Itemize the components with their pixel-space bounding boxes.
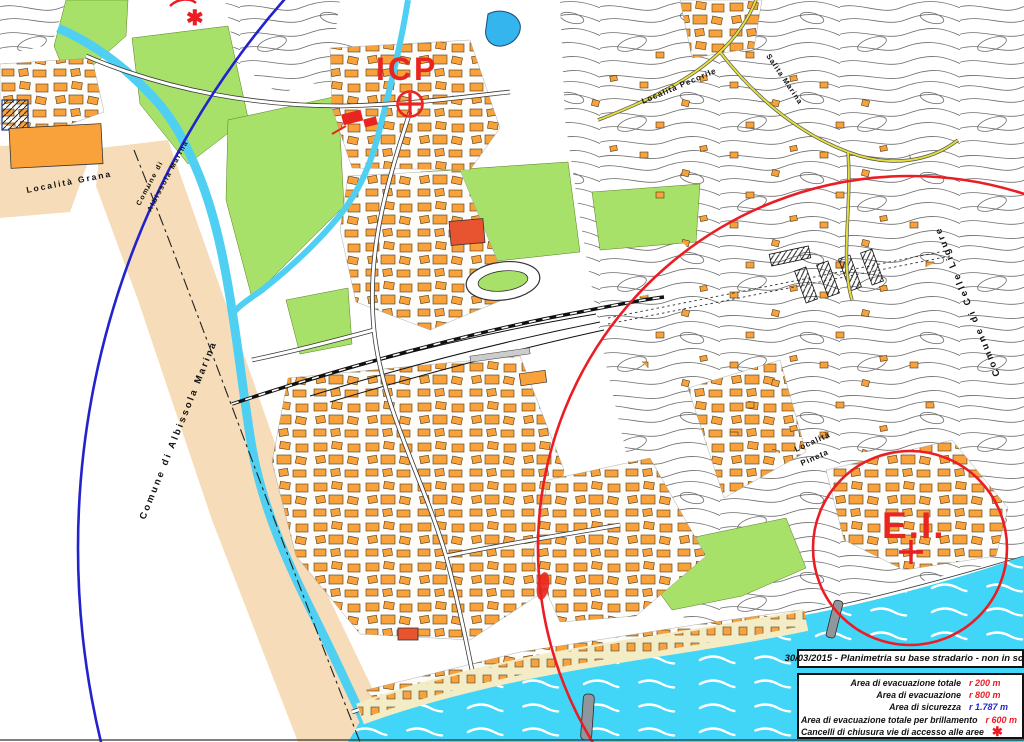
legend-row-evac-totale: Area di evacuazione totale r 200 m <box>801 677 1018 689</box>
legend-value: r 200 m <box>961 678 1018 688</box>
legend-value: r 800 m <box>961 690 1018 700</box>
legend-label: Cancelli di chiusura vie di accesso alle… <box>801 727 984 737</box>
icp-marker <box>398 92 423 117</box>
legend-label: Area di evacuazione totale <box>801 678 961 688</box>
legend-title: 30/03/2015 - Planimetria su base stradar… <box>785 653 1024 664</box>
legend: Area di evacuazione totale r 200 m Area … <box>797 673 1024 739</box>
legend-label: Area di evacuazione <box>801 690 961 700</box>
ei-label: E.I. <box>882 505 946 546</box>
legend-gate-asterisk: ✱ <box>984 727 1018 737</box>
icp-label: ICP <box>376 51 438 87</box>
legend-label: Area di evacuazione totale per brillamen… <box>801 715 977 725</box>
legend-value: r 1.787 m <box>961 702 1018 712</box>
legend-row-cancelli: Cancelli di chiusura vie di accesso alle… <box>801 726 1018 738</box>
map-image: ✱ ICP E.I. Comune di Albissola Marina Co… <box>0 0 1024 742</box>
reservoir-hatched <box>2 100 28 130</box>
legend-row-evac: Area di evacuazione r 800 m <box>801 689 1018 701</box>
legend-label: Area di sicurezza <box>801 702 961 712</box>
evacuation-map-canvas[interactable]: ✱ ICP E.I. Comune di Albissola Marina Co… <box>0 0 1024 742</box>
legend-row-sicurezza: Area di sicurezza r 1.787 m <box>801 701 1018 713</box>
legend-title-box: 30/03/2015 - Planimetria su base stradar… <box>797 649 1024 668</box>
legend-row-brillamento: Area di evacuazione totale per brillamen… <box>801 714 1018 726</box>
gate-asterisk-marker: ✱ <box>186 7 204 30</box>
